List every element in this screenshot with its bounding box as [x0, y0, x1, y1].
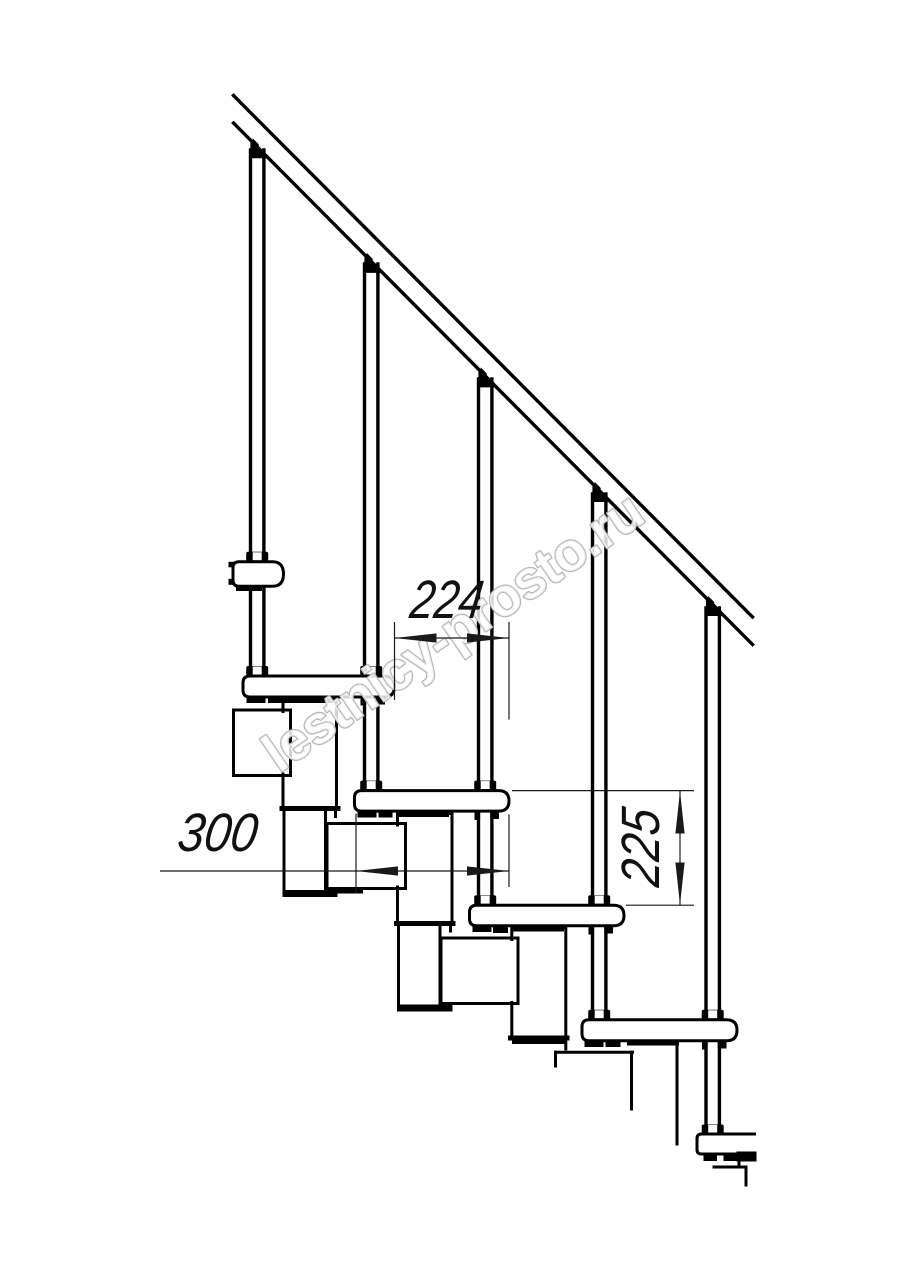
- svg-text:224: 224: [406, 570, 487, 630]
- svg-text:300: 300: [174, 803, 261, 863]
- svg-text:225: 225: [611, 804, 671, 891]
